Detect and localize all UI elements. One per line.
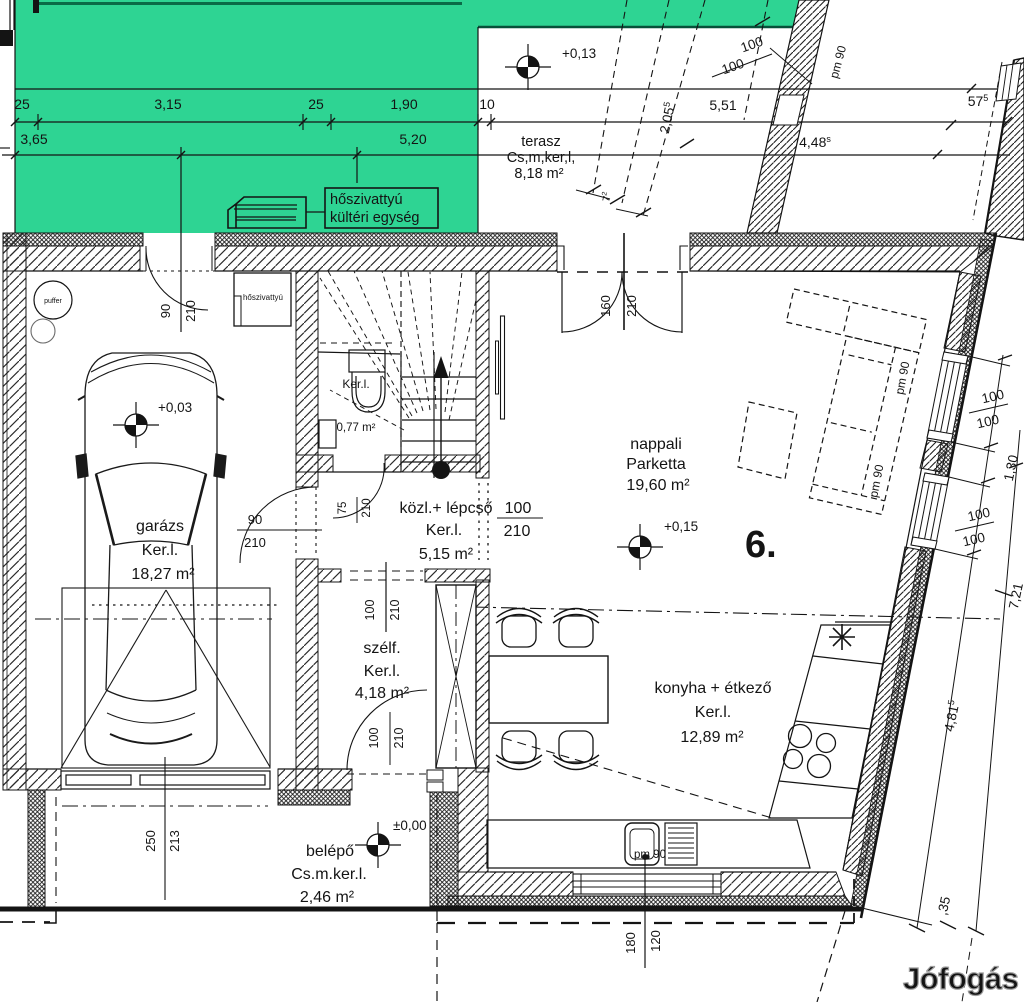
svg-text:nappali: nappali: [630, 436, 682, 453]
svg-text:±0,00: ±0,00: [393, 818, 427, 833]
svg-text:Ker.l.: Ker.l.: [426, 522, 462, 539]
svg-text:1,90: 1,90: [390, 96, 417, 112]
svg-text:213: 213: [167, 830, 182, 852]
svg-text:10: 10: [479, 96, 495, 112]
svg-text:Ker.l.: Ker.l.: [342, 377, 369, 391]
svg-text:210: 210: [361, 498, 373, 517]
svg-text:6.: 6.: [745, 524, 777, 566]
svg-text:8,18 m²: 8,18 m²: [514, 166, 563, 182]
svg-text:25: 25: [308, 96, 324, 112]
svg-text:19,60 m²: 19,60 m²: [626, 477, 690, 494]
svg-text:12,89 m²: 12,89 m²: [680, 729, 744, 746]
svg-text:210: 210: [392, 728, 406, 749]
svg-text:Cs.m.ker.l.: Cs.m.ker.l.: [291, 866, 367, 883]
svg-text:kültéri egység: kültéri egység: [330, 210, 419, 226]
svg-text:garázs: garázs: [136, 518, 184, 535]
svg-text:hőszivattyú: hőszivattyú: [330, 192, 403, 208]
svg-text:3,65: 3,65: [20, 131, 47, 147]
svg-text:100: 100: [367, 728, 381, 749]
svg-text:100: 100: [363, 600, 377, 621]
svg-text:3,15: 3,15: [154, 96, 181, 112]
svg-text:+0,13: +0,13: [562, 46, 596, 61]
svg-text:90: 90: [158, 304, 173, 318]
svg-text:puffer: puffer: [44, 298, 62, 305]
svg-text:210: 210: [624, 295, 639, 317]
svg-text:100: 100: [505, 500, 532, 517]
svg-text:terasz: terasz: [521, 134, 561, 150]
svg-text:közl.+ lépcső: közl.+ lépcső: [400, 500, 493, 517]
svg-text:Parketta: Parketta: [626, 456, 686, 473]
svg-text:+0,03: +0,03: [158, 400, 192, 415]
svg-text:konyha + étkező: konyha + étkező: [655, 680, 772, 697]
svg-text:5,51: 5,51: [709, 97, 736, 113]
svg-text:belépő: belépő: [306, 843, 354, 860]
svg-text:Ker.l.: Ker.l.: [695, 704, 731, 721]
svg-text:Jófogás: Jófogás: [903, 961, 1018, 996]
svg-text:Ker.l.: Ker.l.: [142, 542, 178, 559]
svg-text:90: 90: [248, 512, 262, 527]
svg-text:hőszivattyú: hőszivattyú: [243, 293, 283, 302]
svg-text:5,15 m²: 5,15 m²: [419, 546, 474, 563]
svg-text:2,46 m²: 2,46 m²: [300, 889, 355, 906]
svg-text:5,20: 5,20: [399, 131, 426, 147]
svg-text:180: 180: [623, 932, 638, 954]
svg-text:25: 25: [14, 96, 30, 112]
svg-text:szélf.: szélf.: [363, 640, 400, 657]
svg-text:pm 90: pm 90: [634, 849, 666, 861]
svg-text:0,77 m²: 0,77 m²: [337, 422, 376, 434]
svg-text:160: 160: [598, 295, 613, 317]
svg-text:250: 250: [143, 830, 158, 852]
svg-text:75: 75: [337, 502, 349, 515]
svg-text:210: 210: [183, 300, 198, 322]
svg-text:Ker.l.: Ker.l.: [364, 663, 400, 680]
svg-text:210: 210: [504, 523, 531, 540]
svg-text:18,27 m²: 18,27 m²: [131, 566, 195, 583]
svg-text:120: 120: [648, 930, 663, 952]
svg-text:210: 210: [244, 535, 266, 550]
svg-text:+0,15: +0,15: [664, 519, 698, 534]
svg-text:Cs,m,ker,l,: Cs,m,ker,l,: [507, 150, 575, 166]
svg-text:210: 210: [388, 600, 402, 621]
svg-text:4,18 m²: 4,18 m²: [355, 685, 410, 702]
